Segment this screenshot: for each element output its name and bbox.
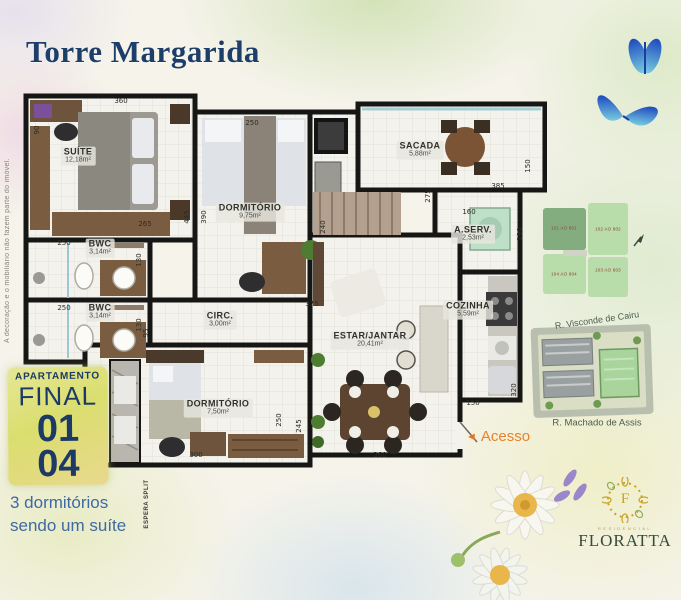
- dim-label: 300: [189, 451, 202, 459]
- dim-label: 275: [424, 189, 432, 202]
- room-label-bwc-2: BWC3,14m²: [86, 303, 115, 322]
- dim-label: 150: [524, 159, 532, 172]
- dim-label: 90: [33, 126, 41, 135]
- dim-label: 245: [295, 419, 303, 432]
- butterfly-icon: [597, 95, 658, 128]
- dim-label: 250: [275, 413, 283, 426]
- unit-locator: 101 AO 801 102 AO 802 104 AO 804 103 AO …: [535, 200, 645, 300]
- room-label-suite: SUÍTE12,18m²: [61, 147, 96, 166]
- dim-label: 150: [466, 399, 479, 407]
- dim-label: 160: [462, 208, 475, 216]
- street-label-bottom: R. Machado de Assis: [552, 418, 641, 429]
- dim-label: 95: [142, 329, 150, 338]
- poster: Torre Margarida A decoração e o mobiliár…: [0, 0, 681, 600]
- dim-label: 250: [57, 304, 70, 312]
- dim-label: 360: [114, 97, 127, 105]
- dim-label: 250: [245, 119, 258, 127]
- dim-label: 375: [305, 300, 318, 308]
- page-title: Torre Margarida: [26, 34, 260, 70]
- room-label-dormitorio-1: DORMITÓRIO9,75m²: [216, 203, 285, 222]
- dim-label: 320: [510, 383, 518, 396]
- unit-locator-graphic: [535, 200, 645, 300]
- brand-logo: F RESIDENCIAL FLORATTA: [578, 477, 672, 551]
- disclaimer-vertical-text: A decoração e o mobiliário não fazem par…: [4, 128, 11, 343]
- dim-label: 240: [319, 220, 327, 233]
- dim-label: 390: [200, 210, 208, 223]
- room-label-sacada: SACADA5,88m²: [397, 141, 444, 160]
- unit-label-102: 102 AO 802: [595, 227, 621, 232]
- dim-label: 190: [516, 227, 524, 240]
- badge-number-04: 04: [37, 446, 80, 481]
- logo-brand-name: FLORATTA: [578, 531, 672, 551]
- unit-label-104: 104 AO 804: [551, 272, 577, 277]
- dim-label: 250: [57, 239, 70, 247]
- espera-split-label: ESPERA SPLIT: [144, 479, 150, 528]
- logo-monogram: F: [621, 491, 629, 508]
- unit-label-103: 103 AO 803: [595, 268, 621, 273]
- tagline-line1: 3 dormitórios: [10, 492, 126, 515]
- logo-wreath-icon: F: [602, 477, 648, 523]
- tagline-line2: sendo um suíte: [10, 515, 126, 538]
- dim-label: 385: [491, 182, 504, 190]
- butterflies-decoration: [595, 28, 675, 138]
- apartment-badge: APARTAMENTO FINAL 01 04: [7, 366, 108, 485]
- site-map: [526, 310, 658, 426]
- room-label-dormitorio-2: DORMITÓRIO7,50m²: [184, 399, 253, 418]
- dim-label: 360: [373, 451, 386, 459]
- dim-label: 265: [138, 220, 151, 228]
- dim-label: 445: [183, 210, 191, 223]
- site-map-graphic: [526, 310, 658, 426]
- room-label-aserv: A.SERV.2,53m²: [451, 225, 495, 244]
- tagline: 3 dormitórios sendo um suíte: [10, 492, 126, 538]
- butterfly-icon: [625, 36, 665, 75]
- room-label-circ: CIRC.3,00m²: [204, 311, 237, 330]
- daisy-flower-icon: [491, 471, 559, 539]
- room-label-cozinha: COZINHA5,59m²: [443, 301, 493, 320]
- daisy-flower-icon: [471, 546, 528, 600]
- daisies-decoration: [430, 440, 600, 600]
- room-label-bwc-1: BWC3,14m²: [86, 239, 115, 258]
- room-label-estar-jantar: ESTAR/JANTAR20,41m²: [331, 331, 410, 350]
- dim-label: 130: [135, 253, 143, 266]
- badge-number-01: 01: [37, 411, 80, 446]
- unit-label-101: 101 AO 801: [551, 226, 577, 231]
